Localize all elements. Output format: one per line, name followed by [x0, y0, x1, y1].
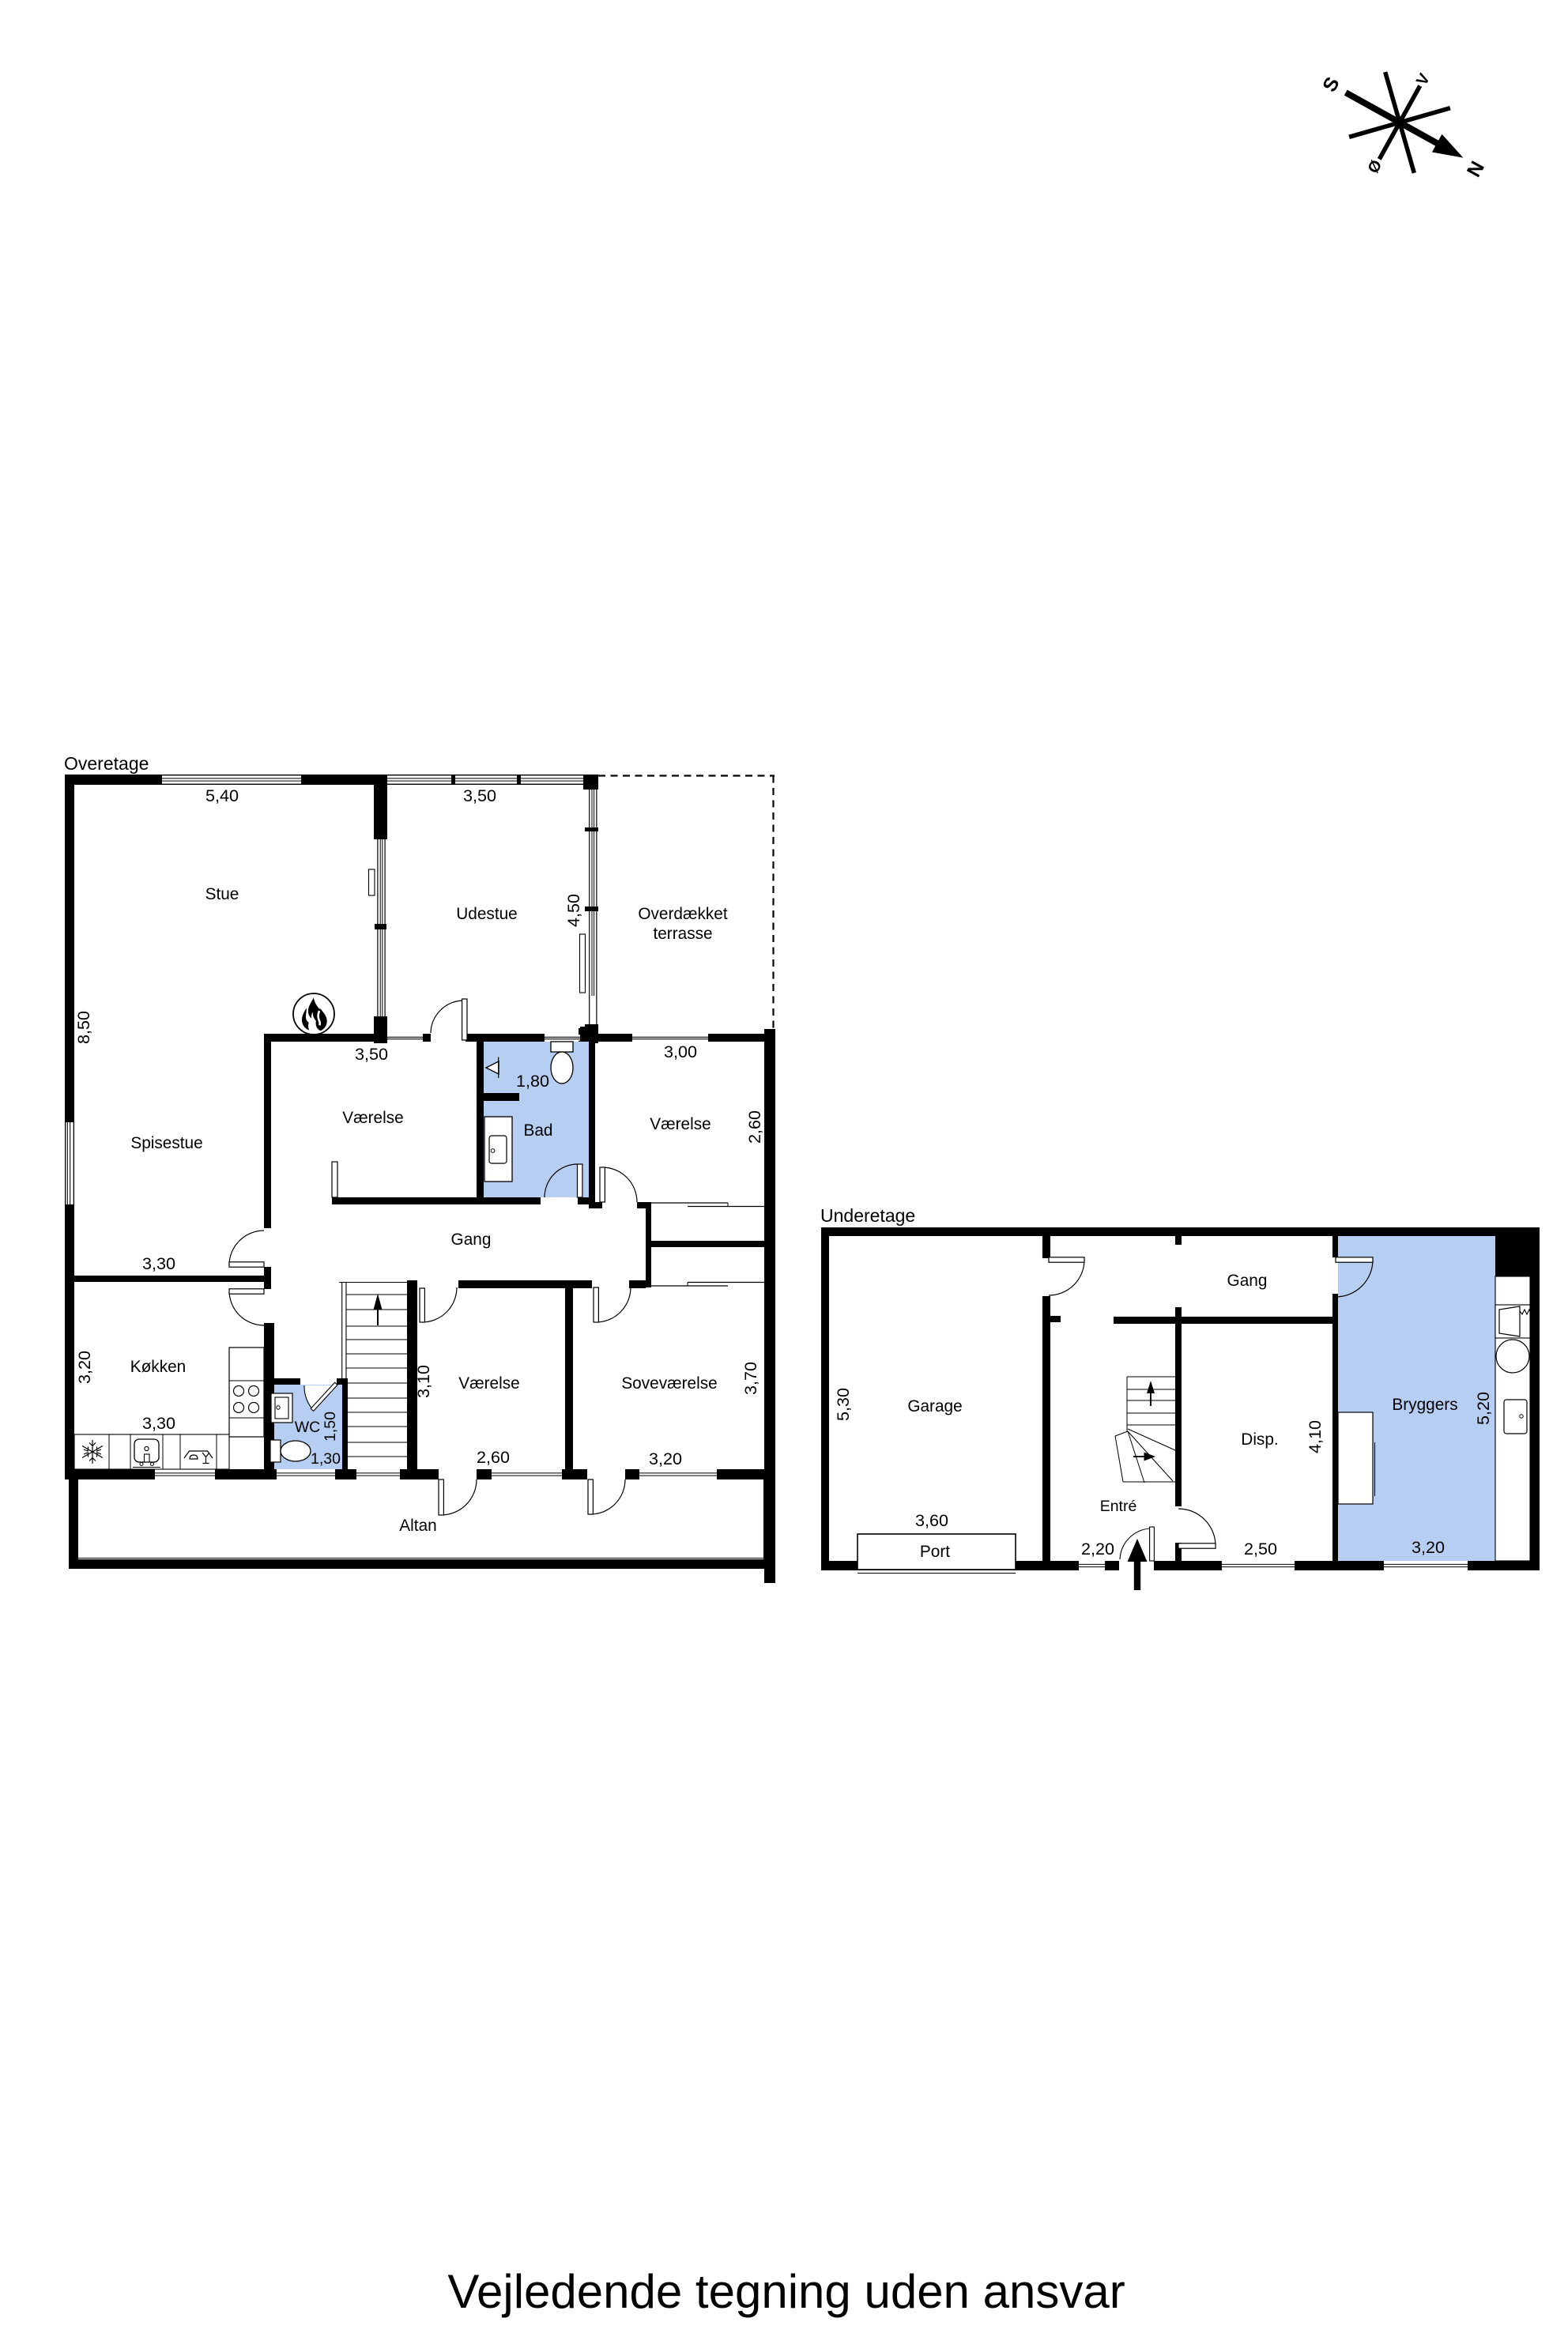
svg-text:4,50: 4,50: [563, 894, 583, 927]
svg-text:3,20: 3,20: [649, 1449, 682, 1468]
svg-text:Underetage: Underetage: [820, 1205, 915, 1226]
svg-text:Vejledende tegning uden ansvar: Vejledende tegning uden ansvar: [447, 2265, 1125, 2318]
svg-text:Spisestue: Spisestue: [130, 1134, 202, 1152]
svg-text:Udestue: Udestue: [456, 905, 517, 923]
svg-text:2,50: 2,50: [1244, 1539, 1277, 1559]
svg-text:2,60: 2,60: [477, 1447, 510, 1467]
svg-text:1,30: 1,30: [311, 1450, 341, 1468]
svg-text:3,60: 3,60: [915, 1510, 948, 1530]
svg-text:2,60: 2,60: [744, 1110, 764, 1144]
svg-text:Værelse: Værelse: [458, 1374, 519, 1393]
svg-text:Disp.: Disp.: [1241, 1430, 1278, 1449]
svg-text:3,50: 3,50: [355, 1044, 388, 1064]
svg-text:5,40: 5,40: [205, 786, 239, 805]
svg-text:Overdækket: Overdækket: [638, 905, 727, 923]
svg-text:2,20: 2,20: [1081, 1539, 1114, 1559]
svg-text:Bad: Bad: [523, 1121, 552, 1140]
svg-text:Port: Port: [920, 1543, 950, 1561]
svg-text:3,20: 3,20: [74, 1351, 94, 1384]
svg-text:Soveværelse: Soveværelse: [621, 1374, 717, 1393]
svg-text:Gang: Gang: [451, 1231, 492, 1249]
svg-text:Garage: Garage: [907, 1397, 962, 1415]
svg-text:Værelse: Værelse: [650, 1115, 710, 1133]
svg-text:1,80: 1,80: [516, 1071, 549, 1091]
svg-text:8,50: 8,50: [73, 1011, 93, 1044]
svg-text:Altan: Altan: [399, 1517, 436, 1535]
svg-text:3,00: 3,00: [664, 1042, 697, 1061]
svg-text:1,50: 1,50: [322, 1412, 339, 1442]
svg-text:5,30: 5,30: [833, 1388, 853, 1421]
svg-text:3,50: 3,50: [463, 786, 496, 805]
svg-text:4,10: 4,10: [1305, 1420, 1325, 1453]
svg-text:Gang: Gang: [1227, 1272, 1268, 1290]
svg-text:3,70: 3,70: [741, 1362, 760, 1395]
svg-text:WC: WC: [295, 1419, 321, 1436]
svg-text:Værelse: Værelse: [342, 1109, 403, 1127]
svg-text:5,20: 5,20: [1473, 1392, 1493, 1425]
svg-text:terrasse: terrasse: [653, 925, 712, 943]
svg-text:Stue: Stue: [205, 885, 239, 903]
svg-text:3,30: 3,30: [142, 1413, 175, 1433]
svg-text:Entré: Entré: [1100, 1498, 1137, 1515]
svg-text:Køkken: Køkken: [130, 1358, 187, 1376]
svg-text:Overetage: Overetage: [64, 753, 149, 774]
svg-text:3,30: 3,30: [142, 1253, 175, 1273]
svg-text:3,20: 3,20: [1412, 1537, 1445, 1557]
svg-text:Bryggers: Bryggers: [1392, 1396, 1457, 1414]
